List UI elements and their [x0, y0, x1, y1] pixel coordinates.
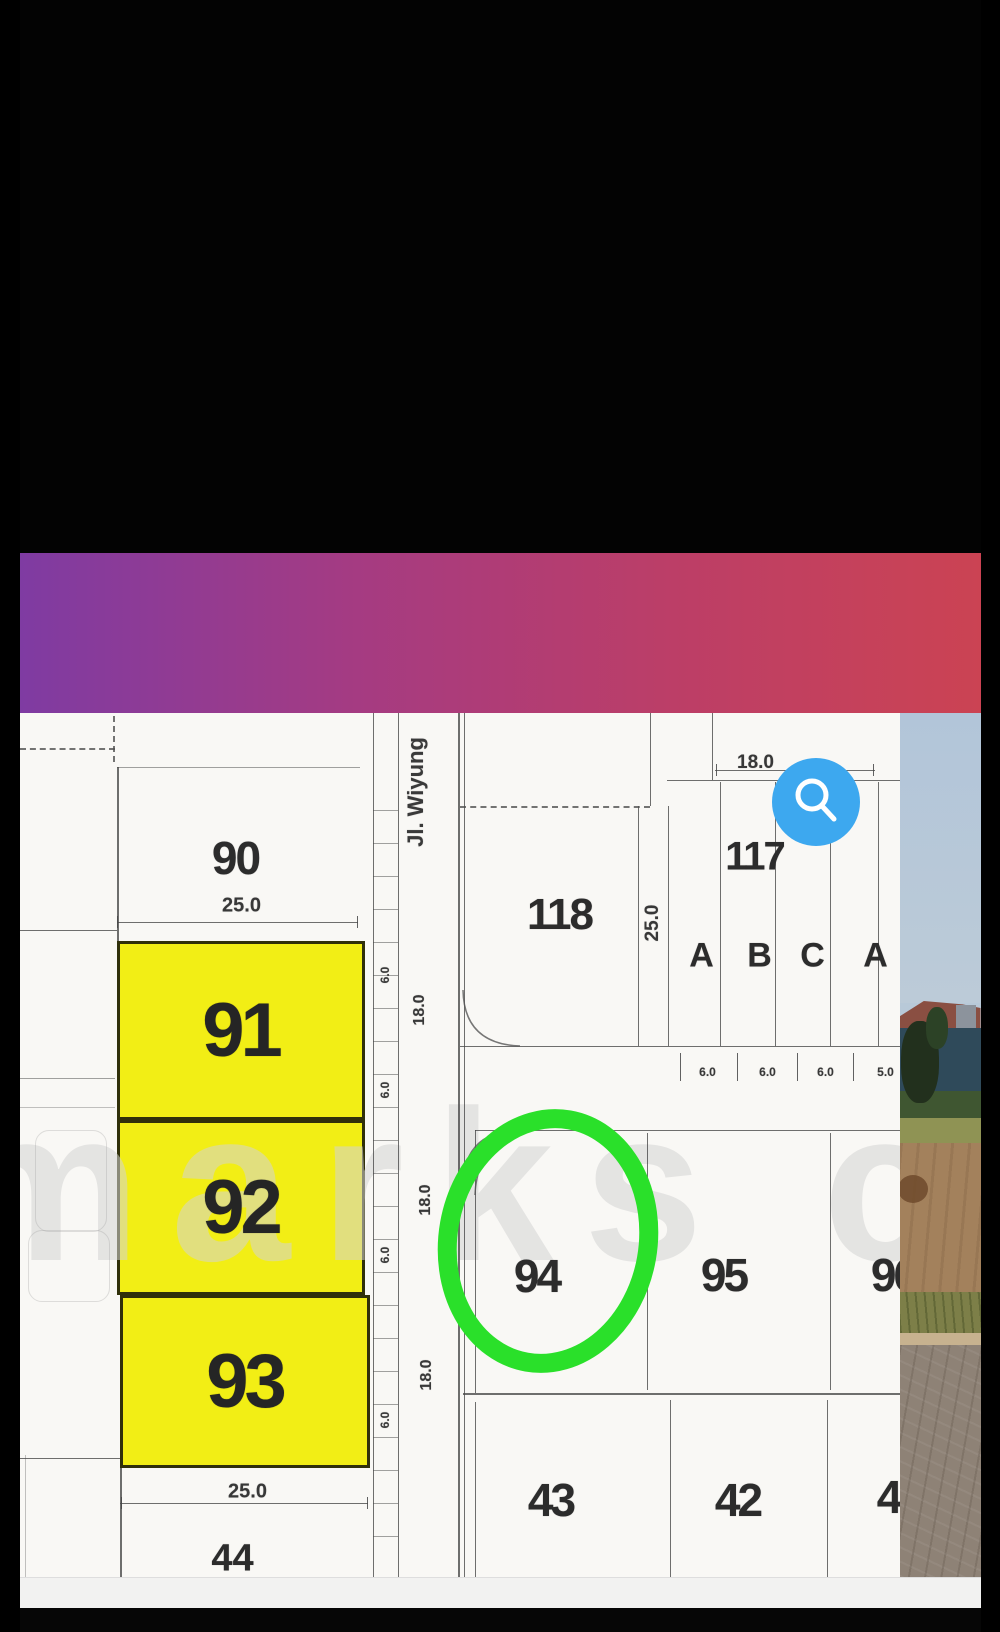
- map-line: [373, 876, 398, 877]
- map-line: [35, 1130, 107, 1232]
- dim-label-5-row: 5.0: [877, 1065, 894, 1079]
- map-line: [668, 806, 669, 1046]
- photo-paved-road: [900, 1345, 981, 1577]
- map-line: [638, 806, 639, 1046]
- map-line: [373, 942, 398, 943]
- nav-bar: me About Us Highlights Property Search A…: [20, 553, 981, 713]
- plot-label-42: 42: [715, 1473, 760, 1527]
- map-line: [113, 716, 115, 762]
- map-line: [373, 1437, 398, 1438]
- dim-label-18-top: 18.0: [737, 752, 774, 774]
- map-photo-region: 91 92 93 marks co 90 25.0 118 25.0 117 1…: [20, 713, 981, 1577]
- map-line: [373, 843, 398, 844]
- map-line: [373, 810, 398, 811]
- map-line: [797, 1053, 798, 1081]
- map-line: [650, 713, 651, 806]
- map-line: [25, 1455, 26, 1577]
- map-line: [20, 930, 117, 931]
- map-line: [373, 1503, 398, 1504]
- map-line: [873, 764, 874, 776]
- top-black-area: [20, 0, 981, 553]
- map-line: [20, 1458, 120, 1459]
- map-line: [853, 1053, 854, 1081]
- map-line: [878, 782, 879, 1046]
- map-line: [373, 1074, 398, 1075]
- map-line: [647, 1133, 648, 1390]
- map-line: [357, 916, 358, 928]
- map-line: [28, 1230, 110, 1302]
- map-line: [373, 1140, 398, 1141]
- map-line: [464, 713, 465, 1577]
- plot-label-92: 92: [202, 1164, 279, 1251]
- map-line: [373, 1239, 398, 1240]
- dim-label-18-a: 18.0: [411, 994, 429, 1025]
- map-line: [670, 1400, 671, 1577]
- map-line: [716, 764, 717, 776]
- map-line: [720, 782, 721, 1046]
- plot-label-44: 44: [211, 1538, 253, 1578]
- map-line: [373, 1173, 398, 1174]
- map-line: [460, 806, 650, 808]
- map-line: [463, 1393, 900, 1395]
- photo-grass: [900, 1118, 981, 1144]
- map-line: [373, 1041, 398, 1042]
- unit-label-c: C: [800, 937, 825, 976]
- photo-curb: [900, 1333, 981, 1345]
- map-line: [373, 1008, 398, 1009]
- map-line: [460, 1046, 900, 1047]
- map-line: [475, 1402, 476, 1577]
- dim-label-6-strip: 6.0: [378, 1412, 392, 1429]
- map-line: [20, 1107, 115, 1108]
- plot-label-96-partial: 96: [871, 1248, 900, 1302]
- plot-label-91: 91: [202, 987, 279, 1074]
- map-line: [373, 909, 398, 910]
- dim-label-6-strip: 6.0: [378, 1247, 392, 1264]
- dim-label-18-b: 18.0: [417, 1184, 435, 1215]
- plot-label-95: 95: [701, 1248, 746, 1302]
- map-line: [373, 1107, 398, 1108]
- photo-tall-grass: [900, 1292, 981, 1334]
- property-photo: [900, 713, 981, 1577]
- map-line: [20, 748, 115, 750]
- plot-label-94: 94: [514, 1249, 559, 1303]
- map-line: [398, 713, 399, 1577]
- bottom-strip: [20, 1577, 981, 1609]
- map-line: [712, 713, 713, 780]
- map-line: [680, 1053, 681, 1081]
- map-line: [373, 1470, 398, 1471]
- map-line: [737, 1053, 738, 1081]
- map-line: [827, 1400, 828, 1577]
- map-line: [117, 767, 360, 768]
- photo-tree: [926, 1007, 948, 1049]
- map-line: [475, 1130, 476, 1393]
- page: me About Us Highlights Property Search A…: [20, 0, 981, 1632]
- map-line: [367, 1497, 368, 1509]
- unit-label-a2: A: [863, 937, 888, 976]
- dim-label-6-strip: 6.0: [378, 1082, 392, 1099]
- dim-label-6-row: 6.0: [759, 1065, 776, 1079]
- map-line: [373, 1272, 398, 1273]
- plot-map: 91 92 93 marks co 90 25.0 118 25.0 117 1…: [20, 713, 900, 1577]
- photo-rock: [900, 1175, 928, 1203]
- dim-label-25-top: 25.0: [222, 895, 261, 918]
- map-line: [458, 713, 460, 1577]
- map-line: [373, 1206, 398, 1207]
- dim-label-25-bottom: 25.0: [228, 1481, 267, 1504]
- map-line: [117, 767, 119, 941]
- unit-label-b: B: [747, 937, 772, 976]
- map-line: [373, 1536, 398, 1537]
- map-line: [373, 1338, 398, 1339]
- dim-label-6-row: 6.0: [699, 1065, 716, 1079]
- map-line: [117, 922, 358, 923]
- plot-label-4x-partial: 4: [877, 1470, 900, 1524]
- plot-label-90: 90: [212, 831, 259, 885]
- plot-label-93: 93: [206, 1338, 283, 1425]
- photo-building: [956, 1005, 976, 1029]
- map-line: [373, 1404, 398, 1405]
- map-line: [20, 1078, 115, 1079]
- map-line: [117, 916, 118, 928]
- unit-label-a: A: [689, 937, 714, 976]
- photo-sky: [900, 713, 981, 1003]
- search-icon: [772, 758, 860, 846]
- map-line: [373, 1305, 398, 1306]
- map-line: [475, 1130, 900, 1131]
- dim-label-6-strip: 6.0: [378, 967, 392, 984]
- dim-label-6-row: 6.0: [817, 1065, 834, 1079]
- plot-label-43: 43: [528, 1473, 573, 1527]
- road-label: Jl. Wiyung: [403, 737, 429, 847]
- map-line: [120, 1468, 122, 1577]
- map-line: [373, 1371, 398, 1372]
- photo-dirt-lot: [900, 1143, 981, 1293]
- zoom-button[interactable]: [772, 758, 860, 846]
- plot-label-118: 118: [527, 890, 592, 940]
- bottom-black-area: [20, 1608, 981, 1632]
- map-line: [121, 1497, 122, 1509]
- map-line: [830, 1133, 831, 1390]
- dim-label-18-c: 18.0: [418, 1359, 436, 1390]
- dim-label-25-rotated: 25.0: [642, 905, 664, 942]
